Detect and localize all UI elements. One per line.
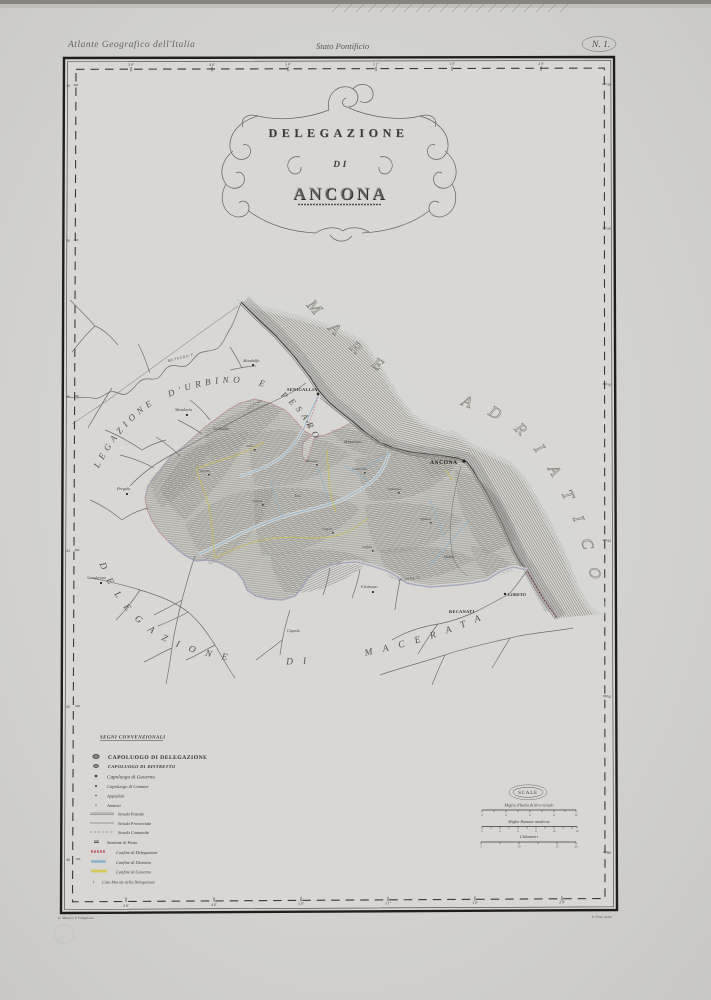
svg-text:Confine di Delegazione: Confine di Delegazione — [116, 850, 158, 855]
svg-text:Camerano: Camerano — [388, 487, 402, 491]
svg-text:ANCONA: ANCONA — [293, 183, 388, 203]
svg-text:DI: DI — [332, 160, 349, 170]
svg-text:Staffolo: Staffolo — [362, 545, 372, 549]
svg-text:M.Marciano: M.Marciano — [343, 440, 362, 444]
svg-text:20: 20 — [66, 238, 70, 243]
svg-text:Corinaldo: Corinaldo — [213, 427, 229, 431]
svg-text:1 0': 1 0' — [472, 900, 478, 905]
svg-text:2 0': 2 0' — [559, 900, 565, 905]
svg-text:Osimo: Osimo — [444, 554, 454, 559]
svg-text:3 1°: 3 1° — [373, 62, 380, 67]
svg-text:2 0': 2 0' — [538, 61, 544, 66]
svg-text:SCALE: SCALE — [518, 790, 538, 796]
svg-text:Sassoferrato: Sassoferrato — [87, 576, 106, 580]
svg-text:Miglia Romane moderne: Miglia Romane moderne — [507, 819, 550, 824]
svg-text:Chiaravalle: Chiaravalle — [352, 467, 368, 471]
svg-text:Strada Provinciale: Strada Provinciale — [118, 821, 151, 826]
svg-text:3 1°: 3 1° — [385, 901, 392, 906]
svg-text:Strada Postale: Strada Postale — [118, 812, 144, 817]
svg-text:N. 1.: N. 1. — [591, 40, 610, 50]
svg-text:43: 43 — [66, 548, 70, 553]
svg-text:CAPOLUOGO DI DELEGAZIONE: CAPOLUOGO DI DELEGAZIONE — [108, 755, 207, 761]
svg-text:ANCONA: ANCONA — [430, 460, 458, 466]
svg-text:4 0': 4 0' — [211, 902, 217, 907]
svg-text:Cingoli: Cingoli — [322, 527, 332, 531]
svg-text:30: 30 — [66, 83, 70, 88]
svg-text:50: 50 — [607, 694, 611, 699]
svg-text:Miglia d'Italia di 60 a Grado: Miglia d'Italia di 60 a Grado — [504, 803, 554, 808]
svg-text:40: 40 — [66, 857, 70, 862]
svg-text:Appodiati: Appodiati — [106, 794, 125, 799]
svg-text:DELEGAZIONE: DELEGAZIONE — [269, 126, 409, 140]
svg-text:Pergola: Pergola — [116, 486, 130, 491]
svg-text:30: 30 — [607, 82, 611, 87]
svg-text:SEGNI CONVENZIONALI: SEGNI CONVENZIONALI — [100, 735, 166, 741]
svg-text:20: 20 — [607, 226, 611, 231]
svg-text:Annessi: Annessi — [106, 803, 121, 808]
svg-text:RECANATI: RECANATI — [449, 609, 475, 614]
svg-text:SENIGALLIA: SENIGALLIA — [287, 387, 318, 392]
svg-text:G. Masini e F. Pelaghi inc.: G. Masini e F. Pelaghi inc. — [58, 916, 95, 920]
svg-text:10: 10 — [607, 382, 611, 387]
svg-text:4 0': 4 0' — [209, 62, 215, 67]
svg-text:Arcevia: Arcevia — [199, 469, 210, 473]
svg-text:Cignolo: Cignolo — [287, 628, 300, 633]
svg-text:Atlante Geografico dell'Italia: Atlante Geografico dell'Italia — [67, 40, 195, 50]
svg-text:Monsano: Monsano — [305, 459, 318, 463]
svg-text:1 0': 1 0' — [449, 61, 455, 66]
svg-text:Filottrano: Filottrano — [360, 584, 377, 589]
svg-text:40: 40 — [607, 850, 611, 855]
svg-text:LORETO: LORETO — [508, 592, 527, 597]
svg-text:Capoluogo di Governo: Capoluogo di Governo — [107, 775, 155, 781]
svg-text:5 0': 5 0' — [298, 901, 304, 906]
svg-text:Cupram.: Cupram. — [252, 499, 263, 503]
svg-text:Capoluogo di Comune: Capoluogo di Comune — [107, 784, 149, 789]
svg-text:Stato Pontificio: Stato Pontificio — [316, 41, 369, 51]
svg-text:43: 43 — [607, 538, 611, 543]
svg-text:Stazione di Posta: Stazione di Posta — [107, 840, 138, 845]
svg-text:Chilometri: Chilometri — [520, 834, 539, 839]
svg-text:CAPOLUOGO DI DISTRETTO: CAPOLUOGO DI DISTRETTO — [108, 764, 176, 769]
svg-text:Iesi: Iesi — [294, 493, 301, 498]
svg-text:Offagna: Offagna — [420, 517, 431, 521]
svg-text:Mondavio: Mondavio — [174, 407, 192, 412]
svg-text:Mondolfo: Mondolfo — [242, 358, 259, 363]
svg-text:Citta Murate della Delegazione: Citta Murate della Delegazione — [102, 880, 155, 885]
svg-text:Confine di Distretto: Confine di Distretto — [116, 860, 152, 865]
svg-text:5 0': 5 0' — [285, 62, 291, 67]
svg-text:3 0': 3 0' — [123, 903, 129, 908]
svg-text:Strada Comunale: Strada Comunale — [118, 830, 149, 835]
svg-text:50: 50 — [66, 704, 70, 709]
svg-text:Ostra: Ostra — [246, 444, 254, 448]
svg-text:P. Prani incise: P. Prani incise — [591, 915, 612, 919]
svg-text:3 0': 3 0' — [128, 62, 134, 67]
svg-text:Confine di Governo: Confine di Governo — [116, 869, 152, 874]
